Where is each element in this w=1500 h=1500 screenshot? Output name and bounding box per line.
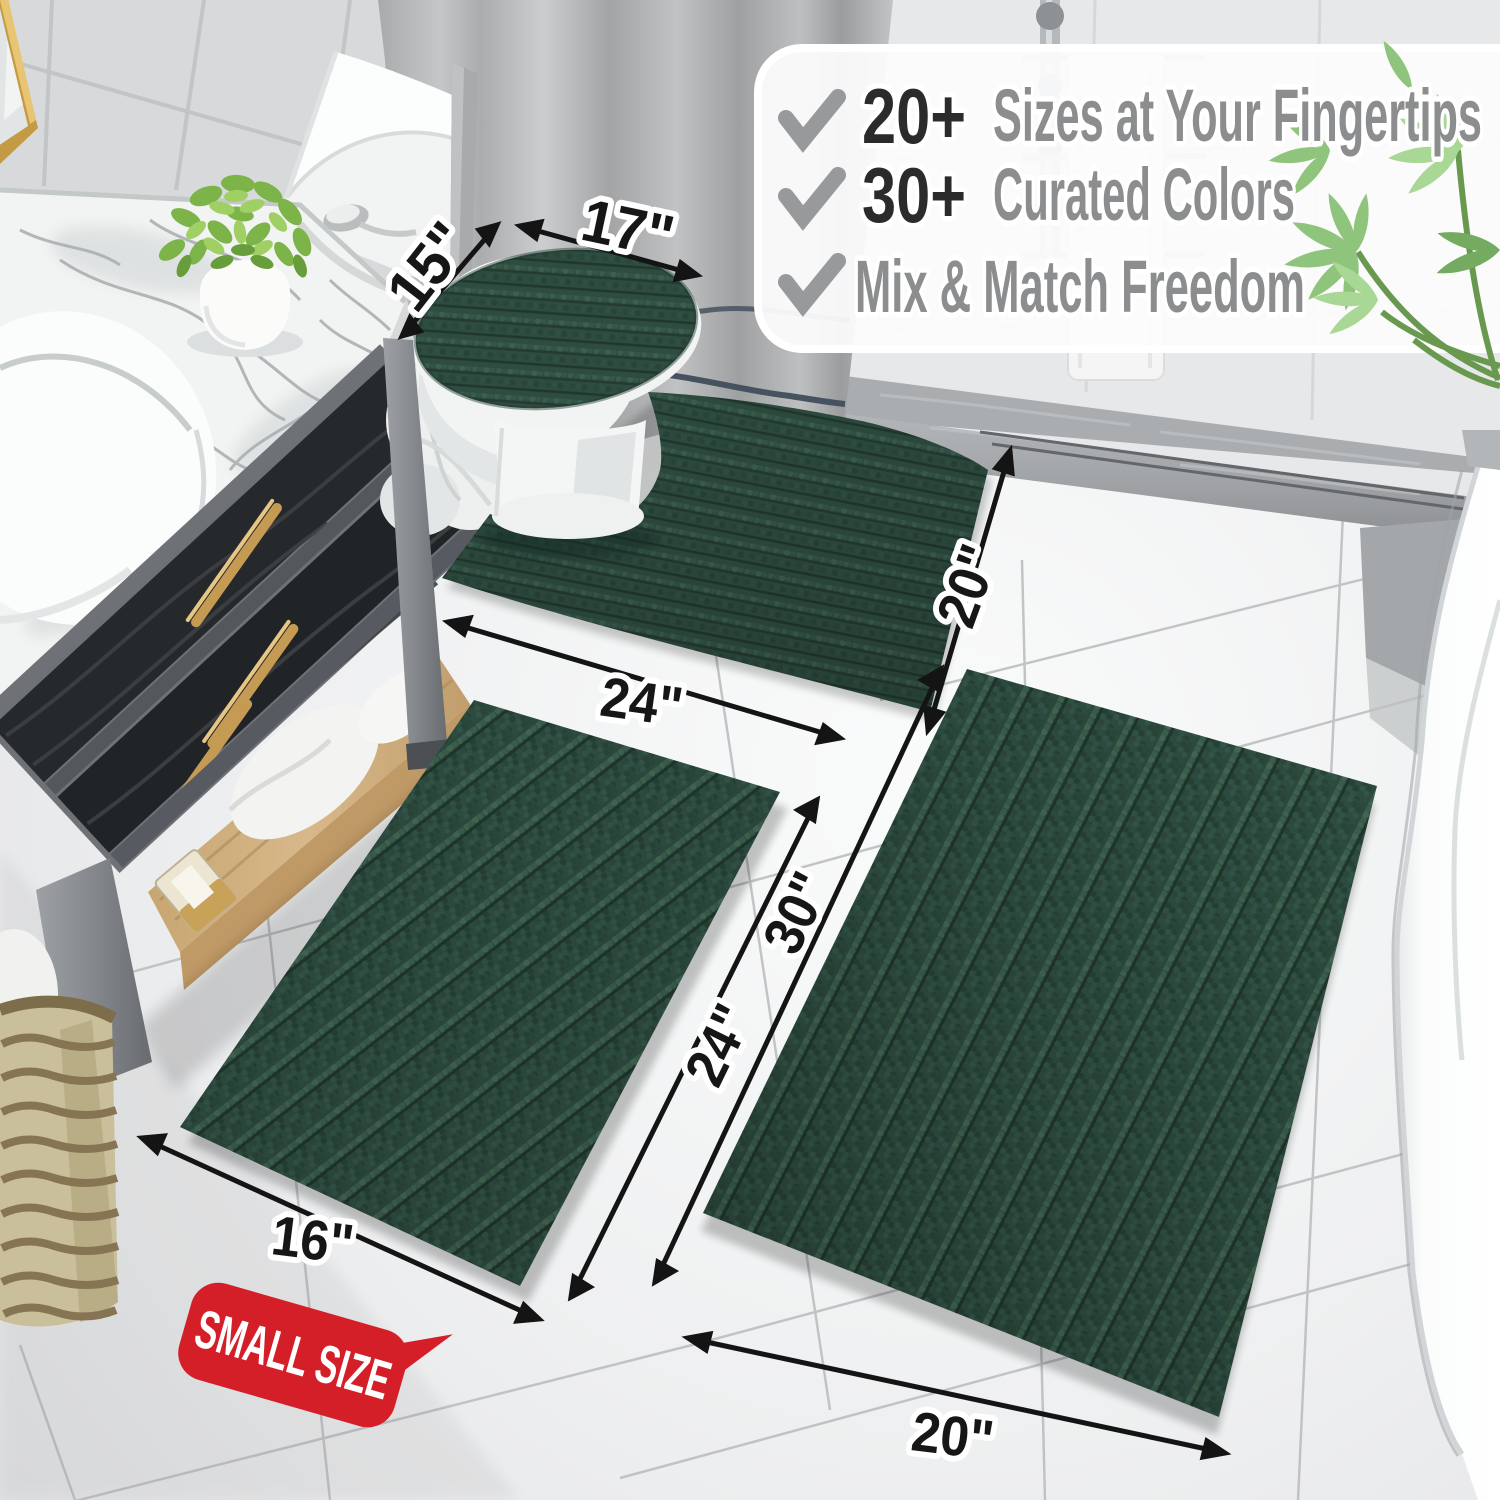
- svg-text:24": 24": [597, 665, 687, 739]
- svg-text:Sizes at Your Fingertips: Sizes at Your Fingertips: [993, 74, 1482, 157]
- svg-text:Mix & Match Freedom: Mix & Match Freedom: [855, 245, 1305, 328]
- svg-text:30+: 30+: [862, 151, 966, 239]
- svg-text:20+: 20+: [862, 72, 966, 160]
- svg-text:Curated Colors: Curated Colors: [993, 153, 1295, 236]
- svg-text:20": 20": [908, 1399, 997, 1472]
- svg-text:16": 16": [268, 1203, 357, 1276]
